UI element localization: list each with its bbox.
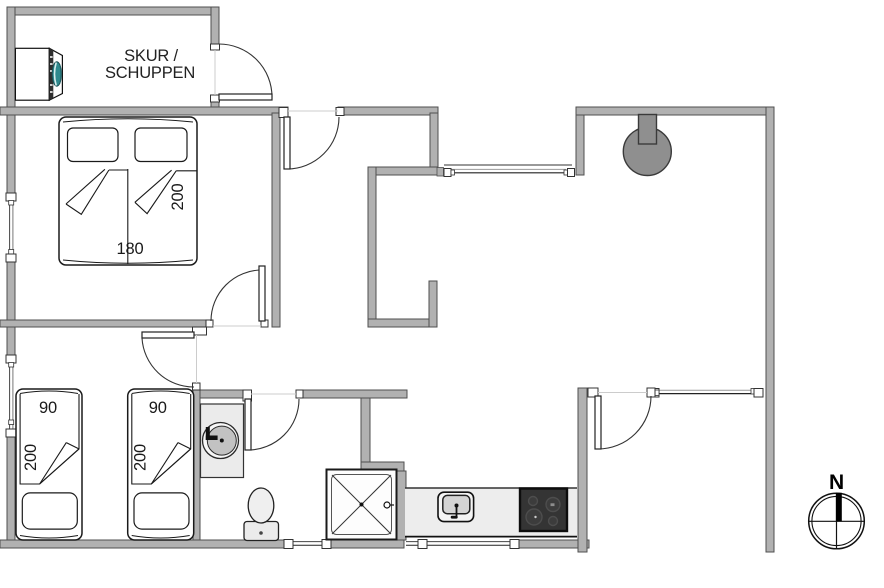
svg-text:SCHUPPEN: SCHUPPEN xyxy=(105,64,195,82)
svg-text:90: 90 xyxy=(149,399,167,417)
svg-text:90: 90 xyxy=(39,399,57,417)
svg-text:SKUR /: SKUR / xyxy=(124,47,178,65)
svg-text:200: 200 xyxy=(169,184,187,211)
svg-text:N: N xyxy=(829,471,844,494)
svg-text:200: 200 xyxy=(132,444,150,471)
svg-text:200: 200 xyxy=(22,444,40,471)
svg-text:180: 180 xyxy=(117,240,144,258)
